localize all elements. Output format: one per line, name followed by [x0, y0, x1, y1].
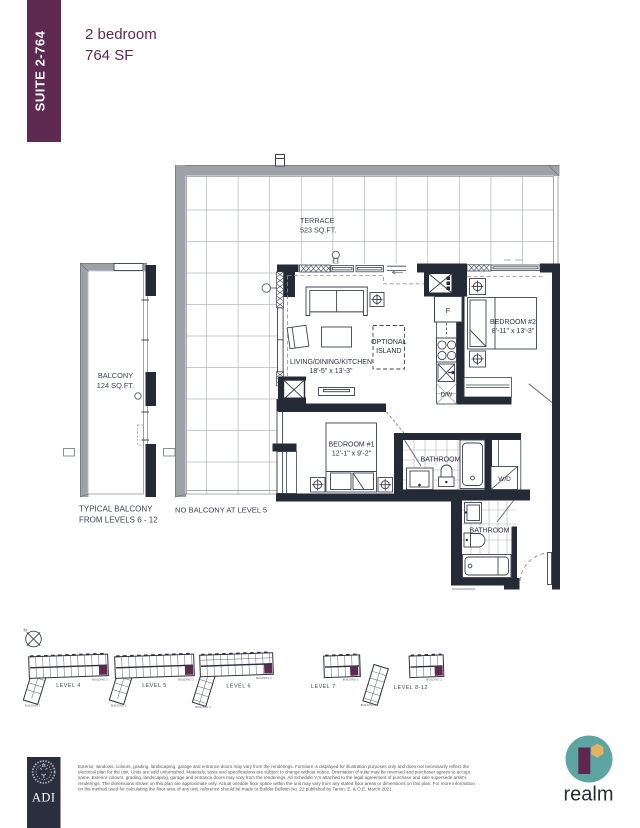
svg-text:BALCONY: BALCONY: [98, 371, 133, 380]
svg-text:BEDROOM #2: BEDROOM #2: [490, 319, 536, 326]
svg-text:OPTIONAL: OPTIONAL: [371, 339, 407, 346]
svg-text:ADI: ADI: [32, 791, 56, 805]
svg-text:Exterior, windows, colours, gr: Exterior, windows, colours, grading, lan…: [78, 764, 469, 769]
svg-text:764 SF: 764 SF: [85, 47, 133, 64]
svg-text:same. Exterior colours, gradin: same. Exterior colours, grading, landsca…: [78, 775, 467, 780]
svg-text:FROM LEVELS 6 - 12: FROM LEVELS 6 - 12: [79, 516, 158, 525]
svg-text:LEVEL 7: LEVEL 7: [311, 684, 336, 690]
svg-text:BUILDING 2: BUILDING 2: [426, 678, 442, 682]
svg-text:BUILDING 1: BUILDING 1: [361, 703, 377, 707]
svg-text:12'-1" x 9'-2": 12'-1" x 9'-2": [332, 451, 372, 458]
svg-text:BATHROOM: BATHROOM: [421, 457, 461, 464]
svg-text:electrical plan for the unit.: electrical plan for the unit. Units are …: [78, 770, 471, 775]
svg-text:TYPICAL BALCONY: TYPICAL BALCONY: [79, 505, 153, 514]
svg-text:LIVING/DINING/KITCHEN: LIVING/DINING/KITCHEN: [290, 359, 372, 366]
svg-text:LEVEL 4: LEVEL 4: [56, 683, 81, 689]
svg-text:W/D: W/D: [498, 476, 511, 483]
svg-text:2 bedroom: 2 bedroom: [85, 26, 157, 43]
svg-text:TERRACE: TERRACE: [300, 216, 335, 225]
svg-text:124 SQ.FT.: 124 SQ.FT.: [97, 381, 134, 390]
svg-text:N: N: [24, 628, 27, 633]
svg-text:523 SQ.FT.: 523 SQ.FT.: [300, 226, 336, 235]
svg-text:BUILDING 2: BUILDING 2: [178, 678, 194, 682]
svg-text:on the method used for calcula: on the method used for calculating the f…: [78, 786, 393, 791]
svg-text:BUILDING 2: BUILDING 2: [256, 676, 272, 680]
svg-text:SUITE 2-764: SUITE 2-764: [33, 30, 48, 111]
svg-text:LEVEL 6: LEVEL 6: [226, 684, 251, 690]
svg-text:BEDROOM #1: BEDROOM #1: [329, 442, 375, 449]
svg-text:BUILDING 2: BUILDING 2: [92, 678, 108, 682]
svg-text:NO BALCONY AT LEVEL 5: NO BALCONY AT LEVEL 5: [175, 506, 267, 515]
svg-text:F: F: [446, 306, 451, 315]
svg-text:BUILDING 1: BUILDING 1: [111, 704, 127, 708]
svg-text:BUILDING 2: BUILDING 2: [343, 678, 359, 682]
svg-text:ISLAND: ISLAND: [376, 348, 401, 355]
svg-text:renderings. The dimensions sho: renderings. The dimensions shown on this…: [78, 781, 475, 786]
svg-text:8'-11" x 13'-3": 8'-11" x 13'-3": [492, 328, 535, 335]
svg-text:realm: realm: [563, 784, 613, 806]
svg-text:D/W: D/W: [441, 393, 453, 399]
svg-text:18'-5" x 13'-3": 18'-5" x 13'-3": [309, 368, 353, 375]
svg-text:BUILDING 1: BUILDING 1: [25, 704, 41, 708]
svg-text:BUILDING 1: BUILDING 1: [195, 705, 211, 709]
svg-text:LEVEL 8-12: LEVEL 8-12: [394, 685, 428, 691]
svg-text:LEVEL 5: LEVEL 5: [142, 683, 167, 689]
